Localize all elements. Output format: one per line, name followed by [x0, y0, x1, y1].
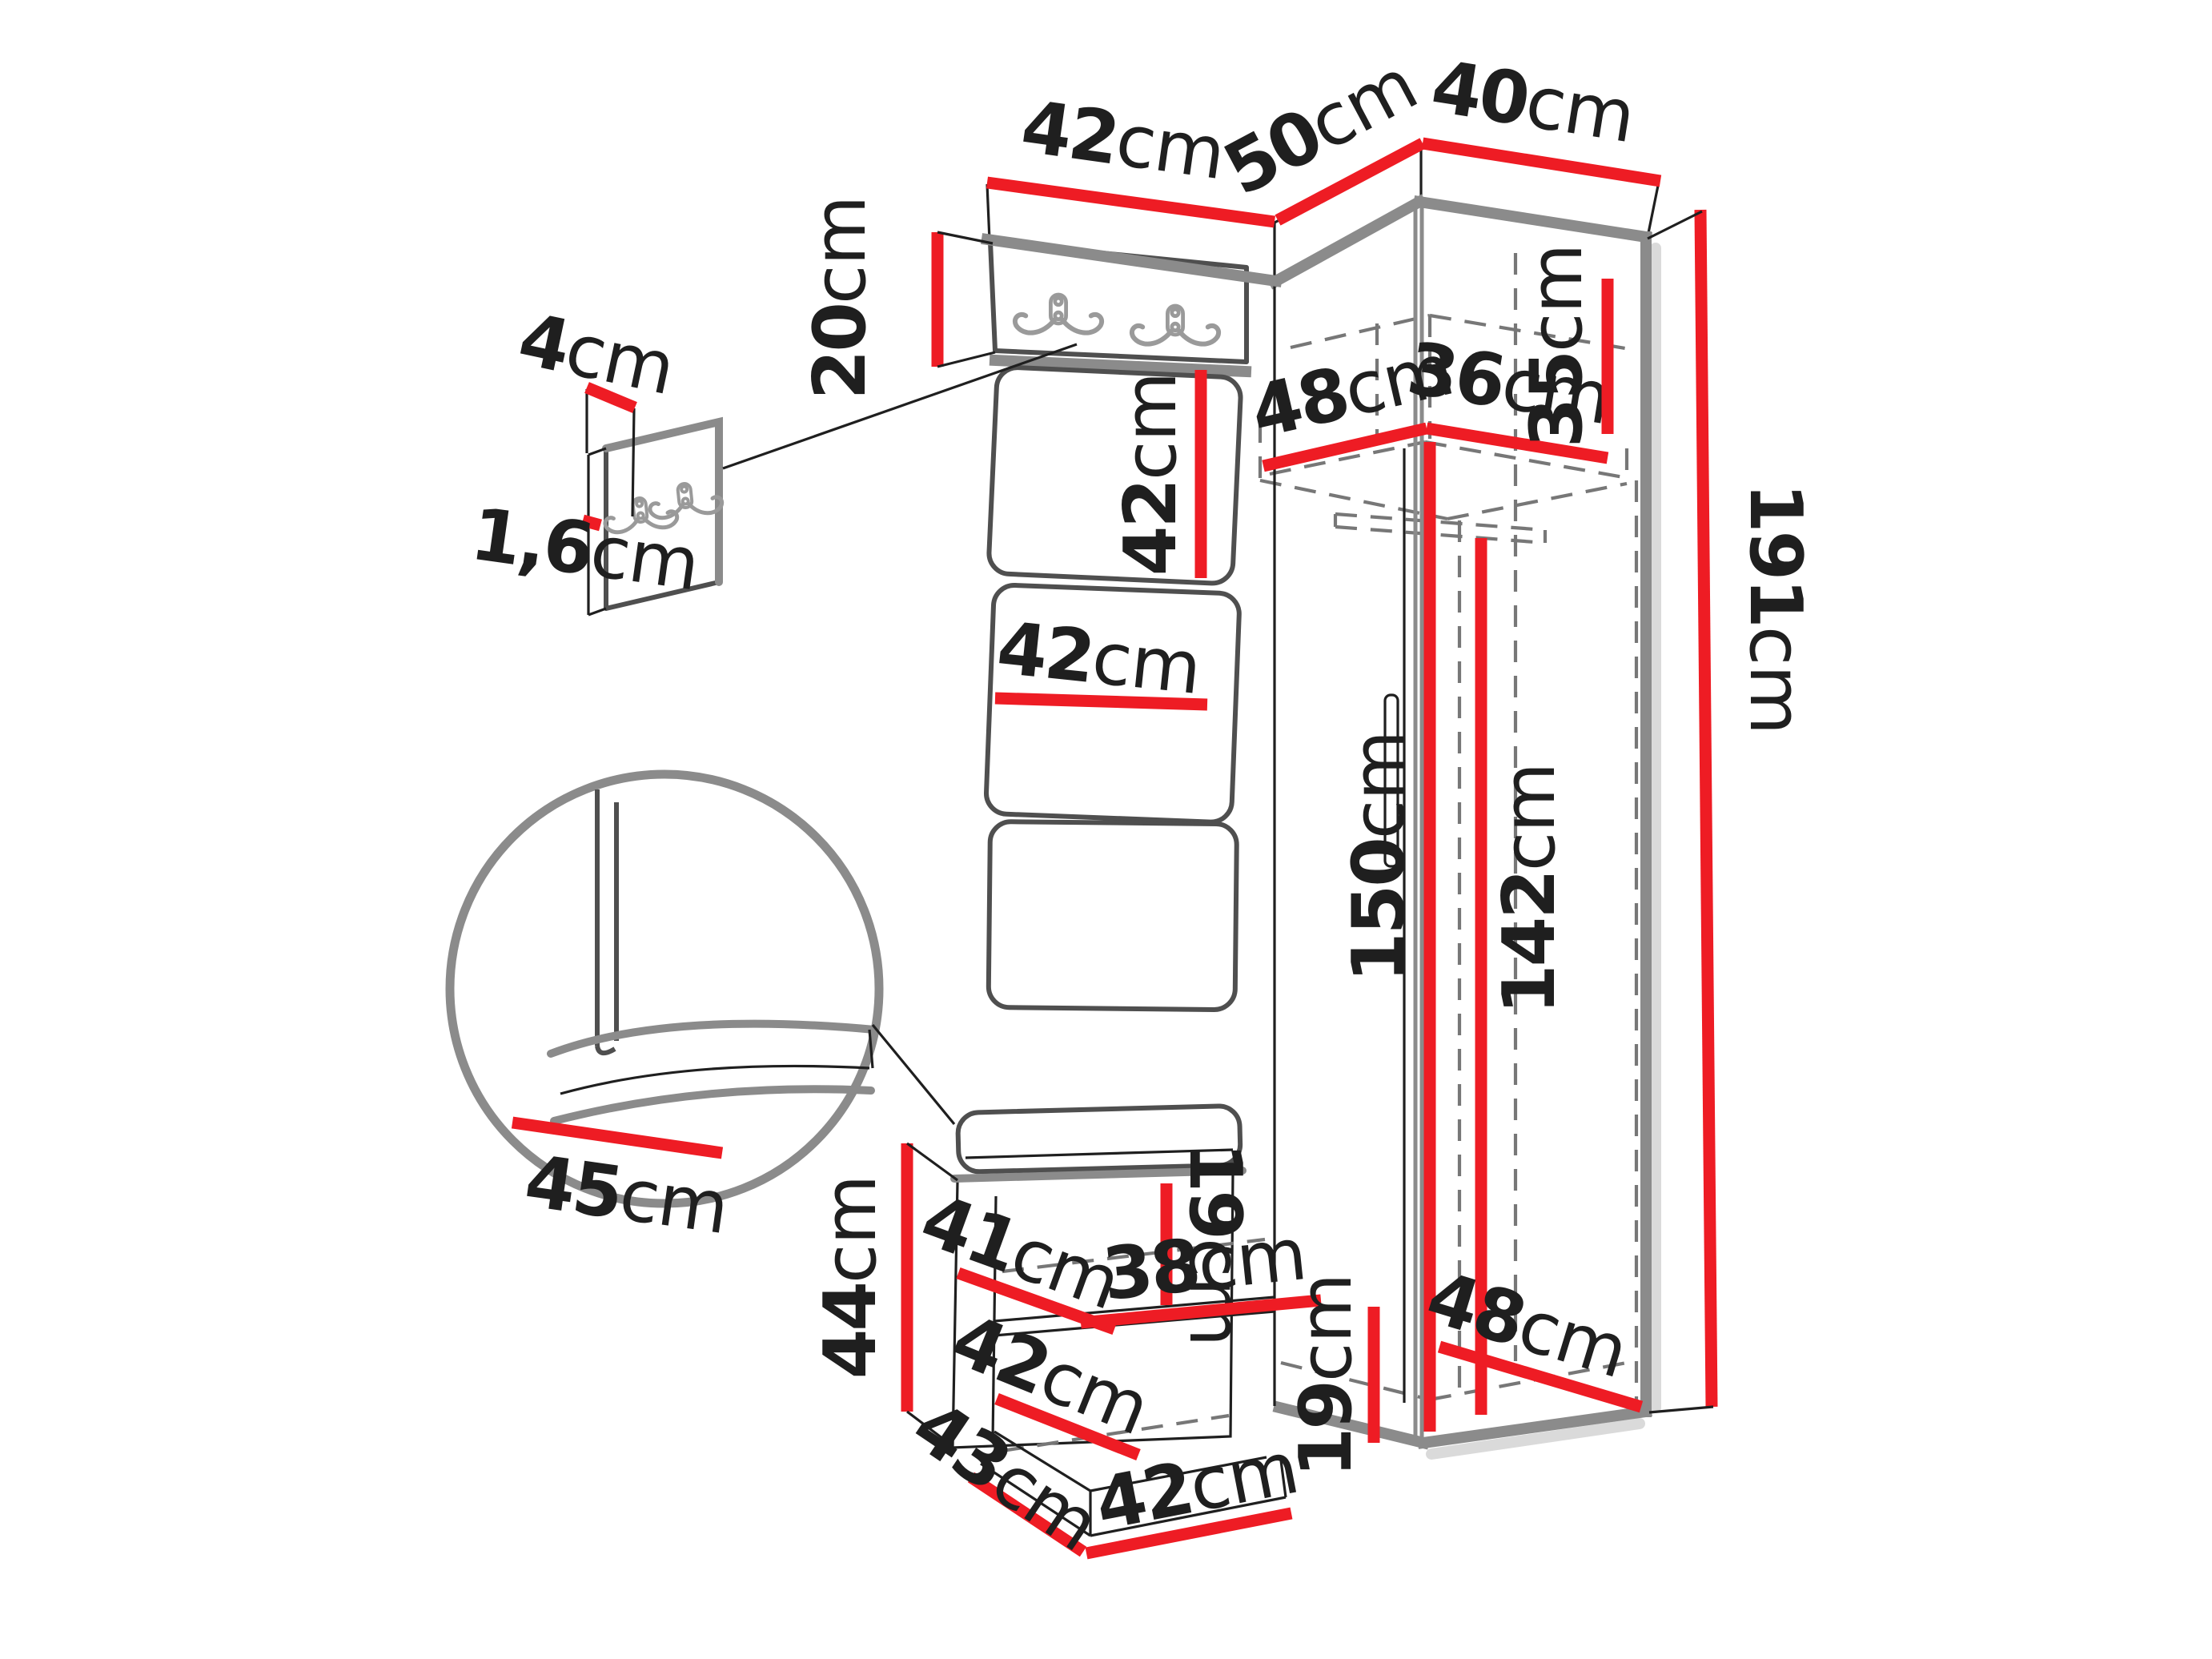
dim-unit: cm — [1109, 372, 1193, 480]
dim-unit: cm — [1515, 244, 1599, 352]
dim-unit: cm — [585, 509, 704, 608]
dim-label: 142cm — [1487, 763, 1572, 1014]
dim-label: 40cm — [1426, 45, 1640, 160]
dim-unit: cm — [1088, 616, 1204, 711]
dim-unit: cm — [798, 196, 882, 304]
dim-unit: cm — [1520, 59, 1640, 159]
dim-value: 35 — [1515, 352, 1599, 448]
dim-label: 35cm — [1515, 244, 1599, 448]
dim-unit: cm — [1111, 98, 1230, 196]
dim-value: 40 — [1426, 45, 1533, 143]
dim-padded-panel-height: 42cm — [1109, 370, 1201, 578]
dim-value: 42 — [1109, 480, 1193, 576]
furniture-dimension-diagram: 42cm 50cm 40cm 20cm 4cm 1,6cm 42cm — [0, 0, 2212, 1659]
dim-unit: cm — [1337, 731, 1421, 839]
dim-label: 20cm — [798, 196, 882, 400]
dim-label: 150cm — [1337, 731, 1421, 982]
dim-value: 142 — [1487, 871, 1572, 1014]
dim-value: 150 — [1337, 839, 1421, 982]
dim-tick — [937, 352, 995, 367]
dim-label: 4cm — [512, 297, 681, 412]
diagram-canvas: 42cm 50cm 40cm 20cm 4cm 1,6cm 42cm — [0, 0, 2212, 1659]
dim-value: 36 — [1402, 327, 1509, 424]
top-band-right-edge — [1648, 182, 1659, 237]
dim-label: 191cm — [1733, 483, 1817, 734]
dim-tick — [907, 1143, 957, 1180]
dim-label: 50cm — [1210, 42, 1430, 212]
dim-value: 1,6 — [466, 492, 597, 592]
dim-bench-shelf-depth: 41cm — [910, 1178, 1130, 1329]
dim-unit: cm — [1733, 626, 1817, 734]
dim-wardrobe-base-height: 19cm — [1284, 1274, 1374, 1477]
dim-value: 19 — [1284, 1382, 1368, 1477]
shelf-front-left-dashed — [1260, 480, 1447, 519]
dim-unit: cm — [1487, 763, 1572, 871]
dim-value: 42 — [1017, 85, 1123, 182]
dim-value: 38 — [1098, 1223, 1202, 1317]
dim-top-compartment-height: 35cm — [1515, 244, 1608, 448]
dim-label: 44cm — [809, 1175, 893, 1379]
dim-top-left-depth: 50cm — [1210, 42, 1430, 220]
dim-value: 20 — [798, 304, 882, 400]
top-band-left-edge — [987, 184, 990, 240]
dim-line — [1700, 210, 1712, 1407]
shelf-front-right-dashed — [1447, 484, 1627, 519]
detail-circle-callout-line — [873, 1025, 954, 1124]
dim-detail-hook-offset: 4cm — [512, 297, 681, 412]
dim-label: 41cm — [910, 1178, 1130, 1327]
dim-top-right-depth: 40cm — [1423, 45, 1660, 181]
dim-value: 42 — [1089, 1446, 1198, 1547]
dim-value: 44 — [809, 1283, 893, 1379]
dim-line — [987, 183, 1275, 222]
dim-label: 42cm — [1109, 372, 1193, 576]
dim-tick — [1648, 211, 1702, 239]
dim-wardrobe-base-depth: 48cm — [1418, 1255, 1641, 1407]
dim-unit: cm — [1284, 1274, 1368, 1382]
dim-hook-panel-height: 20cm — [798, 196, 995, 400]
dim-unit: cm — [615, 1152, 733, 1251]
dim-value: 48 — [1243, 351, 1355, 455]
wardrobe-top-edge-right-face — [1419, 202, 1646, 237]
dim-label: 42cm — [1017, 85, 1230, 196]
dim-unit: cm — [809, 1175, 893, 1283]
dim-label: 19cm — [1284, 1274, 1368, 1477]
dim-value: 45 — [520, 1139, 627, 1236]
dim-total-height: 191cm — [1648, 210, 1817, 1412]
padded-panel-3 — [989, 821, 1237, 1010]
dim-value: 42 — [994, 606, 1098, 700]
dim-unit: cm — [558, 307, 681, 412]
dim-value: 191 — [1733, 483, 1817, 626]
